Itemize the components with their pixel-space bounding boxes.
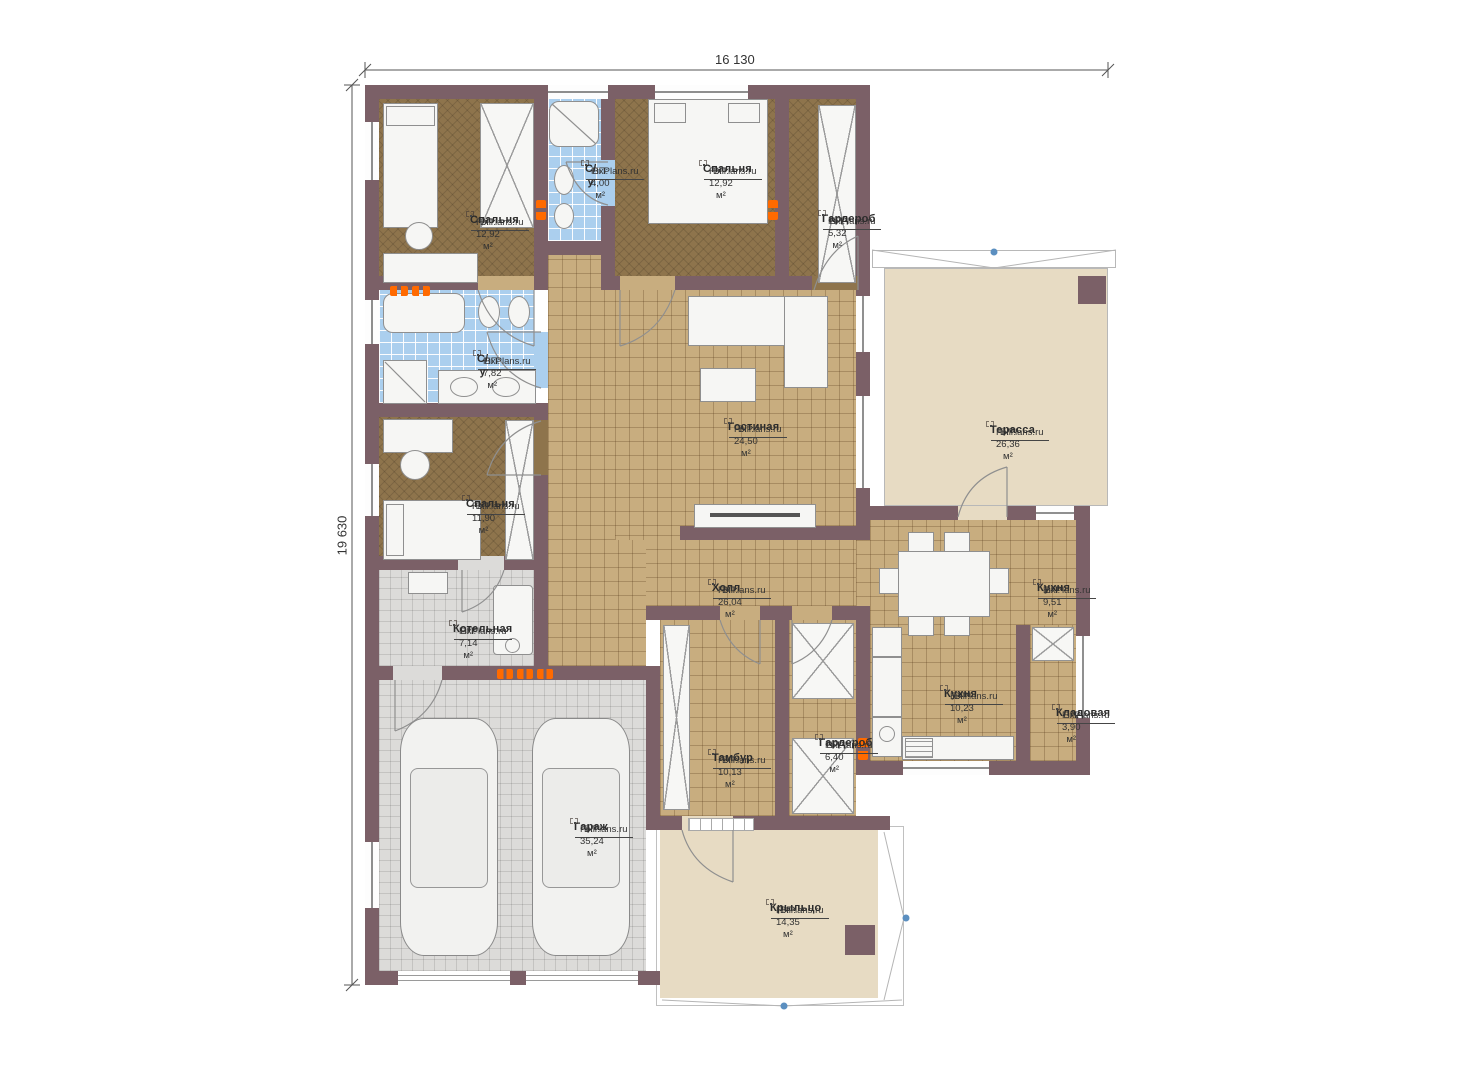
- room-info-box: FixPlans.ru ВП: 7,82 м²: [477, 354, 479, 356]
- room-label-living-room: Гостиная FixPlans.ru ВП: 24,50 м²: [724, 418, 732, 424]
- room-area: ВП: 14,35 м²: [771, 904, 805, 942]
- room-label-bathroom-1: С/у FixPlans.ru ВП: 4,00 м²: [581, 160, 589, 166]
- plan-annotations: [0, 0, 1474, 1080]
- room-area: ВП: 12,92 м²: [704, 165, 738, 203]
- room-info-box: FixPlans.ru ВП: 10,13 м²: [712, 753, 714, 755]
- room-area: ВП: 24,50 м²: [729, 423, 763, 461]
- room-label-porch: Крыльцо FixPlans.ru ВП: 14,35 м²: [766, 899, 774, 905]
- room-info-box: FixPlans.ru ВП: 11,90 м²: [466, 499, 468, 501]
- room-label-garage: Гараж FixPlans.ru ВП: 35,24 м²: [570, 818, 578, 824]
- door-arc: [958, 467, 1007, 517]
- room-area: ВП: 7,82 м²: [478, 355, 506, 393]
- shower-line: [385, 362, 425, 402]
- room-area: ВП: 4,00 м²: [586, 165, 614, 203]
- room-info-box: FixPlans.ru ВП: 12,92 м²: [470, 215, 472, 217]
- room-area: ВП: 26,36 м²: [991, 426, 1025, 464]
- room-area: ВП: 10,23 м²: [945, 690, 979, 728]
- room-area: ВП: 10,13 м²: [713, 754, 747, 792]
- room-label-bedroom-3: Спальня FixPlans.ru ВП: 11,90 м²: [462, 495, 470, 501]
- room-area: ВП: 11,90 м²: [467, 500, 500, 538]
- door-arc: [462, 570, 504, 612]
- porch-roof-line: [884, 832, 904, 1000]
- door-arc: [478, 290, 534, 346]
- room-area: ВП: 5,32 м²: [823, 215, 851, 253]
- room-info-box: FixPlans.ru ВП: 24,50 м²: [728, 422, 730, 424]
- room-label-vestibule: Тамбур FixPlans.ru ВП: 10,13 м²: [708, 749, 716, 755]
- room-info-box: FixPlans.ru ВП: 10,23 м²: [944, 689, 946, 691]
- room-info-box: FixPlans.ru ВП: 9,51 м²: [1037, 583, 1039, 585]
- room-label-hall: Холл FixPlans.ru ВП: 26,04 м²: [708, 579, 716, 585]
- dimension-height-label: 19 630: [334, 516, 349, 556]
- room-info-box: FixPlans.ru ВП: 35,24 м²: [574, 822, 576, 824]
- floor-plan: 16 130 19 630 Спальня FixPlans.ru ВП: 12…: [0, 0, 1474, 1080]
- room-label-boiler-room: Котельная FixPlans.ru ВП: 7,14 м²: [449, 620, 457, 626]
- door-arc: [395, 680, 442, 731]
- room-area: ВП: 3,90 м²: [1057, 709, 1085, 747]
- room-label-bedroom-1: Спальня FixPlans.ru ВП: 12,92 м²: [466, 211, 474, 217]
- room-label-bathroom-2: С/у FixPlans.ru ВП: 7,82 м²: [473, 350, 481, 356]
- survey-dot: [903, 915, 910, 922]
- room-info-box: FixPlans.ru ВП: 5,32 м²: [822, 214, 824, 216]
- room-label-bedroom-2: Спальня FixPlans.ru ВП: 12,92 м²: [699, 160, 707, 166]
- room-info-box: FixPlans.ru ВП: 14,35 м²: [770, 903, 772, 905]
- door-arc: [682, 830, 733, 882]
- door-arc: [487, 421, 541, 475]
- room-info-box: FixPlans.ru ВП: 12,92 м²: [703, 164, 705, 166]
- room-info-box: FixPlans.ru ВП: 6,40 м²: [819, 738, 821, 740]
- room-info-box: FixPlans.ru ВП: 26,36 м²: [990, 425, 992, 427]
- survey-dot: [991, 249, 998, 256]
- door-arc: [620, 290, 675, 346]
- room-info-box: FixPlans.ru ВП: 26,04 м²: [712, 583, 714, 585]
- bathtub-line: [552, 104, 596, 144]
- room-area: ВП: 26,04 м²: [713, 584, 747, 622]
- room-label-dining: Кухня FixPlans.ru ВП: 9,51 м²: [1033, 579, 1041, 585]
- room-label-wardrobe-1: Гардероб FixPlans.ru ВП: 5,32 м²: [818, 210, 826, 216]
- room-info-box: FixPlans.ru ВП: 4,00 м²: [585, 164, 587, 166]
- room-label-kitchen: Кухня FixPlans.ru ВП: 10,23 м²: [940, 685, 948, 691]
- survey-dot: [781, 1003, 788, 1010]
- door-arc: [720, 620, 760, 664]
- dimension-width-label: 16 130: [715, 52, 755, 67]
- room-info-box: FixPlans.ru ВП: 7,14 м²: [453, 624, 455, 626]
- room-label-wardrobe-2: Гардероб FixPlans.ru ВП: 6,40 м²: [815, 734, 823, 740]
- door-arc: [792, 620, 832, 664]
- room-label-pantry: Кладовая FixPlans.ru ВП: 3,90 м²: [1052, 704, 1060, 710]
- room-info-box: FixPlans.ru ВП: 3,90 м²: [1056, 708, 1058, 710]
- room-area: ВП: 12,92 м²: [471, 216, 505, 254]
- room-label-terrace: Терасса FixPlans.ru ВП: 26,36 м²: [986, 421, 994, 427]
- room-area: ВП: 7,14 м²: [454, 625, 482, 663]
- room-area: ВП: 6,40 м²: [820, 739, 848, 777]
- room-area: ВП: 9,51 м²: [1038, 584, 1066, 622]
- room-area: ВП: 35,24 м²: [575, 823, 609, 861]
